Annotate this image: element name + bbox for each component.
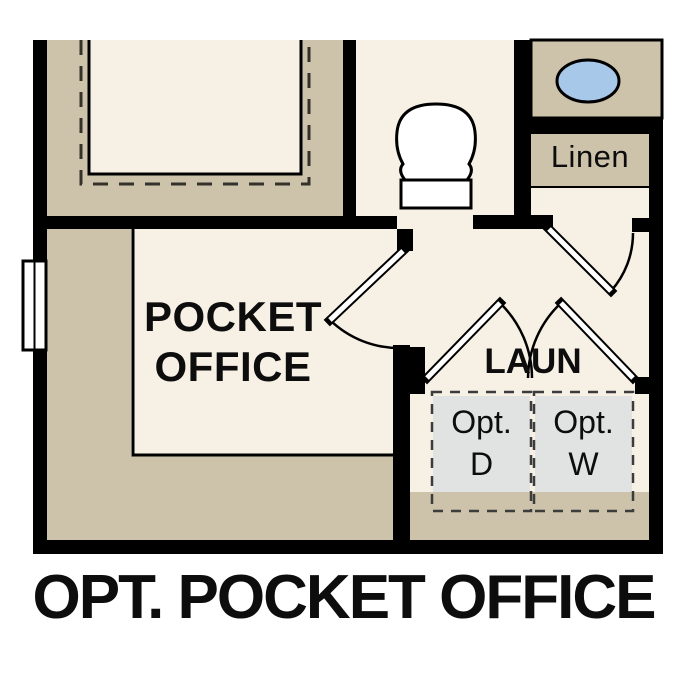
laundry-label: LAUN: [453, 344, 613, 380]
optional-washer-label-line1: Opt.: [535, 401, 632, 443]
sink-basin-icon: [557, 60, 619, 102]
top-left-room-inset: [89, 40, 301, 174]
pocket-office-label-line2: OFFICE: [133, 342, 333, 392]
linen-label: Linen: [531, 140, 649, 174]
wall-horizontal-right: [473, 215, 553, 229]
floorplan-canvas: POCKET OFFICE LAUN Linen Opt. D Opt. W O…: [0, 0, 687, 687]
laundry-door-stub-right: [635, 377, 663, 394]
pocket-office-border-bottom: [131, 456, 393, 540]
laundry-door-stub-left: [393, 347, 425, 394]
window-icon: [23, 261, 46, 350]
plan-caption: OPT. POCKET OFFICE: [0, 566, 687, 630]
optional-dryer-label-line1: Opt.: [433, 401, 530, 443]
pocket-office-label: POCKET OFFICE: [133, 292, 333, 392]
wall-right: [649, 134, 663, 540]
optional-dryer-label: Opt. D: [433, 401, 530, 485]
wall-bath-left: [343, 40, 356, 229]
pocket-office-border-left: [47, 229, 131, 540]
linen-door-stub-right: [632, 218, 663, 232]
optional-washer-label: Opt. W: [535, 401, 632, 485]
pocket-office-label-line1: POCKET: [133, 292, 333, 342]
wall-bottom: [33, 540, 663, 554]
optional-washer-label-line2: W: [535, 443, 632, 485]
optional-dryer-label-line2: D: [433, 443, 530, 485]
wall-horizontal-left: [33, 216, 397, 229]
wall-vanity-linen-divider: [514, 118, 663, 134]
toilet-icon: [397, 104, 476, 208]
